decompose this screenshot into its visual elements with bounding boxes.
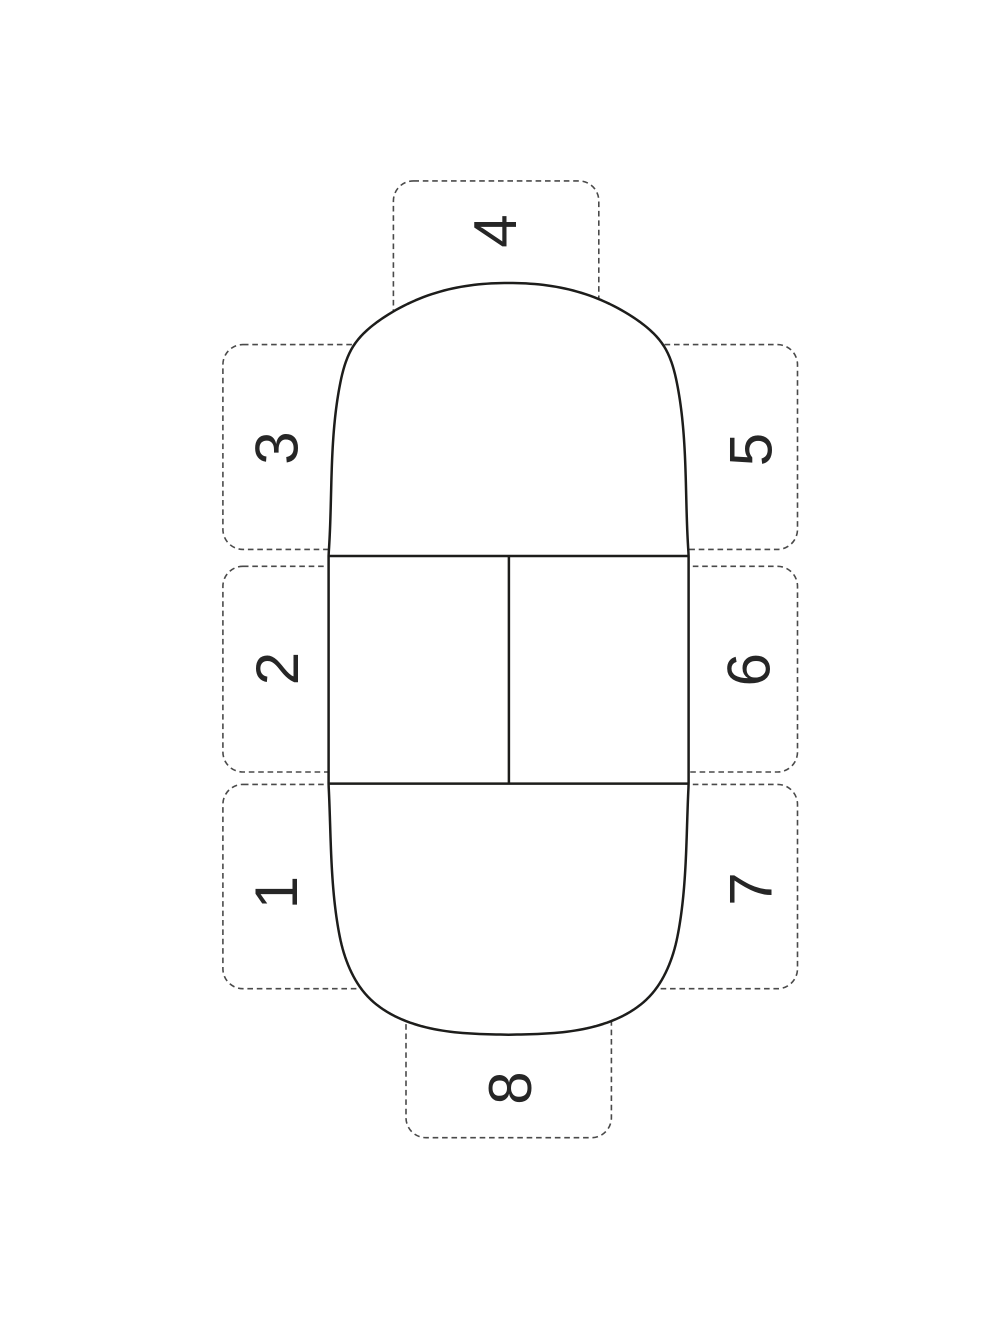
svg-text:7: 7 bbox=[717, 872, 784, 905]
svg-text:3: 3 bbox=[244, 431, 311, 464]
svg-text:6: 6 bbox=[715, 653, 782, 686]
svg-text:1: 1 bbox=[243, 876, 310, 909]
svg-text:5: 5 bbox=[717, 433, 784, 466]
svg-text:4: 4 bbox=[462, 214, 529, 247]
svg-text:8: 8 bbox=[477, 1071, 544, 1104]
svg-text:2: 2 bbox=[244, 652, 311, 685]
